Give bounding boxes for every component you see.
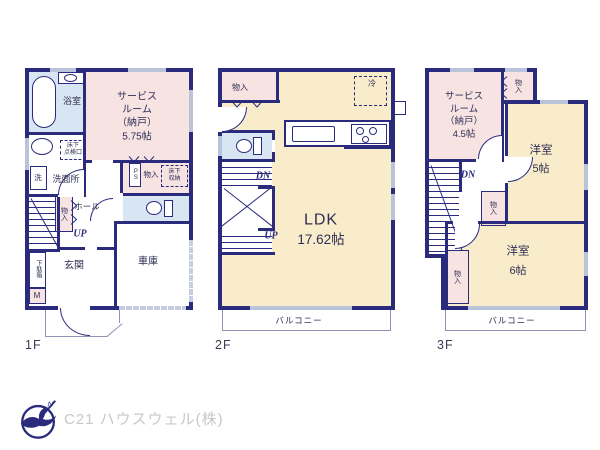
- fridge-label: 冷: [368, 79, 376, 89]
- wall: [57, 194, 60, 252]
- wall: [25, 68, 29, 310]
- burner-icon: [362, 136, 369, 143]
- toilet-icon: [146, 201, 162, 215]
- wall: [445, 221, 448, 306]
- folding-door-icon: [71, 214, 78, 226]
- porch-line: [107, 323, 123, 337]
- porch-line: [119, 310, 120, 323]
- service-room-label: サービス ルーム （納戸） 5.75帖: [117, 91, 157, 144]
- ldk-label: LDK: [304, 211, 338, 232]
- service-room-line: （納戸）: [117, 117, 157, 130]
- wall: [29, 249, 60, 252]
- window: [128, 68, 166, 72]
- wall: [272, 186, 275, 231]
- bird-shape: [21, 407, 56, 428]
- service-room-line: サービス: [445, 91, 483, 104]
- window: [391, 162, 395, 188]
- dn-label: DN: [256, 170, 270, 183]
- washbasin-icon: [31, 138, 53, 155]
- wall: [533, 68, 537, 104]
- porch-line: [45, 310, 46, 337]
- closet-label: 物入: [232, 83, 248, 93]
- balcony-rail: [222, 310, 223, 331]
- window: [468, 306, 560, 310]
- window: [505, 68, 527, 72]
- closet-label: 物入: [144, 170, 159, 180]
- garage-door: [119, 306, 186, 310]
- service-room-line: サービス: [117, 91, 157, 104]
- door-opening: [85, 247, 97, 250]
- door-arc: [60, 308, 90, 336]
- bathtub-icon: [32, 76, 56, 128]
- meter-label: M: [34, 291, 41, 301]
- toilet-tank-icon: [164, 200, 173, 217]
- bath-label: 浴室: [63, 96, 81, 108]
- balcony-label: バルコニー: [275, 315, 322, 326]
- balcony-rail: [390, 310, 391, 331]
- underfloor-hatch-label: 点検口: [64, 150, 82, 158]
- western-room5-area: 5帖: [532, 162, 549, 176]
- bath-sink-icon: [64, 74, 77, 82]
- north-label: N: [48, 400, 54, 409]
- wall: [276, 68, 279, 103]
- door-opening: [92, 160, 113, 163]
- washer-label: 洗: [34, 173, 42, 183]
- underfloor-storage-label: 収納: [168, 176, 180, 184]
- shoe-cabinet-label: 下駄箱: [33, 260, 41, 278]
- service-room-line: （納戸）: [445, 116, 483, 129]
- closet-label: 物入: [488, 201, 497, 215]
- folding-door-icon: [501, 76, 508, 88]
- window: [391, 194, 395, 220]
- western-room5-label: 洋室: [530, 144, 553, 159]
- ps-label: PS: [131, 169, 139, 181]
- window-swing-icon: [394, 101, 406, 115]
- window: [450, 68, 474, 72]
- compass-bird-logo: N: [16, 396, 62, 442]
- wall: [114, 221, 117, 310]
- window: [584, 164, 588, 190]
- company-name: C21 ハウスウェル(株): [64, 408, 224, 429]
- door-opening: [476, 159, 502, 162]
- service-room-label: サービス ルーム （納戸） 4.5帖: [445, 91, 483, 141]
- service-room-line: ルーム: [445, 103, 483, 116]
- balcony-rail: [222, 330, 391, 331]
- floor-label-2f: 2F: [215, 338, 232, 352]
- wall: [584, 100, 588, 310]
- wall: [123, 193, 189, 196]
- wall: [120, 163, 123, 193]
- wall: [114, 221, 189, 224]
- folding-door-icon: [231, 101, 243, 108]
- folding-door-icon: [501, 88, 508, 100]
- floor-plan: 床下 点検口 床下 収納 浴室 洗面所 サービス ルーム （納戸） 5.75帖 …: [0, 0, 600, 450]
- closet-label: 物入: [452, 270, 461, 284]
- burner-icon: [369, 127, 377, 135]
- toilet-icon: [236, 139, 252, 153]
- toilet-tank-icon: [253, 137, 262, 155]
- room-closet-2f: [222, 72, 278, 102]
- balcony-label: バルコニー: [488, 315, 535, 326]
- up-label: UP: [73, 228, 86, 241]
- wall: [425, 68, 429, 258]
- window: [584, 252, 588, 276]
- floor-label-3f: 3F: [437, 338, 454, 352]
- underfloor-hatch-label: 床下: [67, 143, 79, 151]
- burner-icon: [356, 127, 364, 135]
- washroom-label: 洗面所: [52, 174, 79, 186]
- service-room-line: 4.5帖: [445, 129, 483, 142]
- underfloor-storage-label: 床下: [168, 169, 180, 177]
- garage-label: 車庫: [138, 256, 158, 269]
- balcony-rail: [585, 310, 586, 331]
- hall-label: ホール: [74, 201, 100, 212]
- window: [218, 136, 222, 156]
- service-room-line: 5.75帖: [117, 130, 157, 143]
- hall-closet-label: 物入: [59, 207, 68, 221]
- window: [250, 306, 352, 310]
- door-opening: [272, 140, 275, 152]
- porch-line: [45, 336, 108, 337]
- folding-door-icon: [128, 156, 140, 163]
- kitchen-sink-icon: [292, 126, 335, 142]
- service-room-line: ルーム: [117, 104, 157, 117]
- folding-door-icon: [143, 156, 155, 163]
- balcony-rail: [445, 310, 446, 331]
- underfloor-storage-box: 床下 収納: [161, 165, 188, 187]
- wall: [391, 68, 395, 310]
- floor-label-1f: 1F: [25, 338, 42, 352]
- western-room6-label: 洋室: [507, 245, 530, 260]
- wall: [222, 252, 275, 255]
- dn-label: DN: [461, 169, 475, 182]
- ldk-area-label: 17.62帖: [297, 231, 344, 249]
- up-label: UP: [264, 230, 277, 243]
- wall: [344, 145, 391, 149]
- balcony-rail: [445, 330, 586, 331]
- window: [540, 100, 568, 104]
- wall: [222, 159, 275, 162]
- folding-door-icon: [251, 101, 263, 108]
- wall: [218, 68, 395, 72]
- entrance-label: 玄関: [64, 260, 84, 273]
- western-room6-area: 6帖: [509, 264, 526, 278]
- wall: [258, 186, 275, 189]
- garage-shutter: [189, 240, 193, 302]
- window: [25, 138, 29, 170]
- wall: [29, 132, 86, 135]
- closet-label: 物入: [513, 79, 522, 93]
- window: [189, 90, 193, 132]
- window: [50, 68, 76, 72]
- wall: [218, 68, 222, 310]
